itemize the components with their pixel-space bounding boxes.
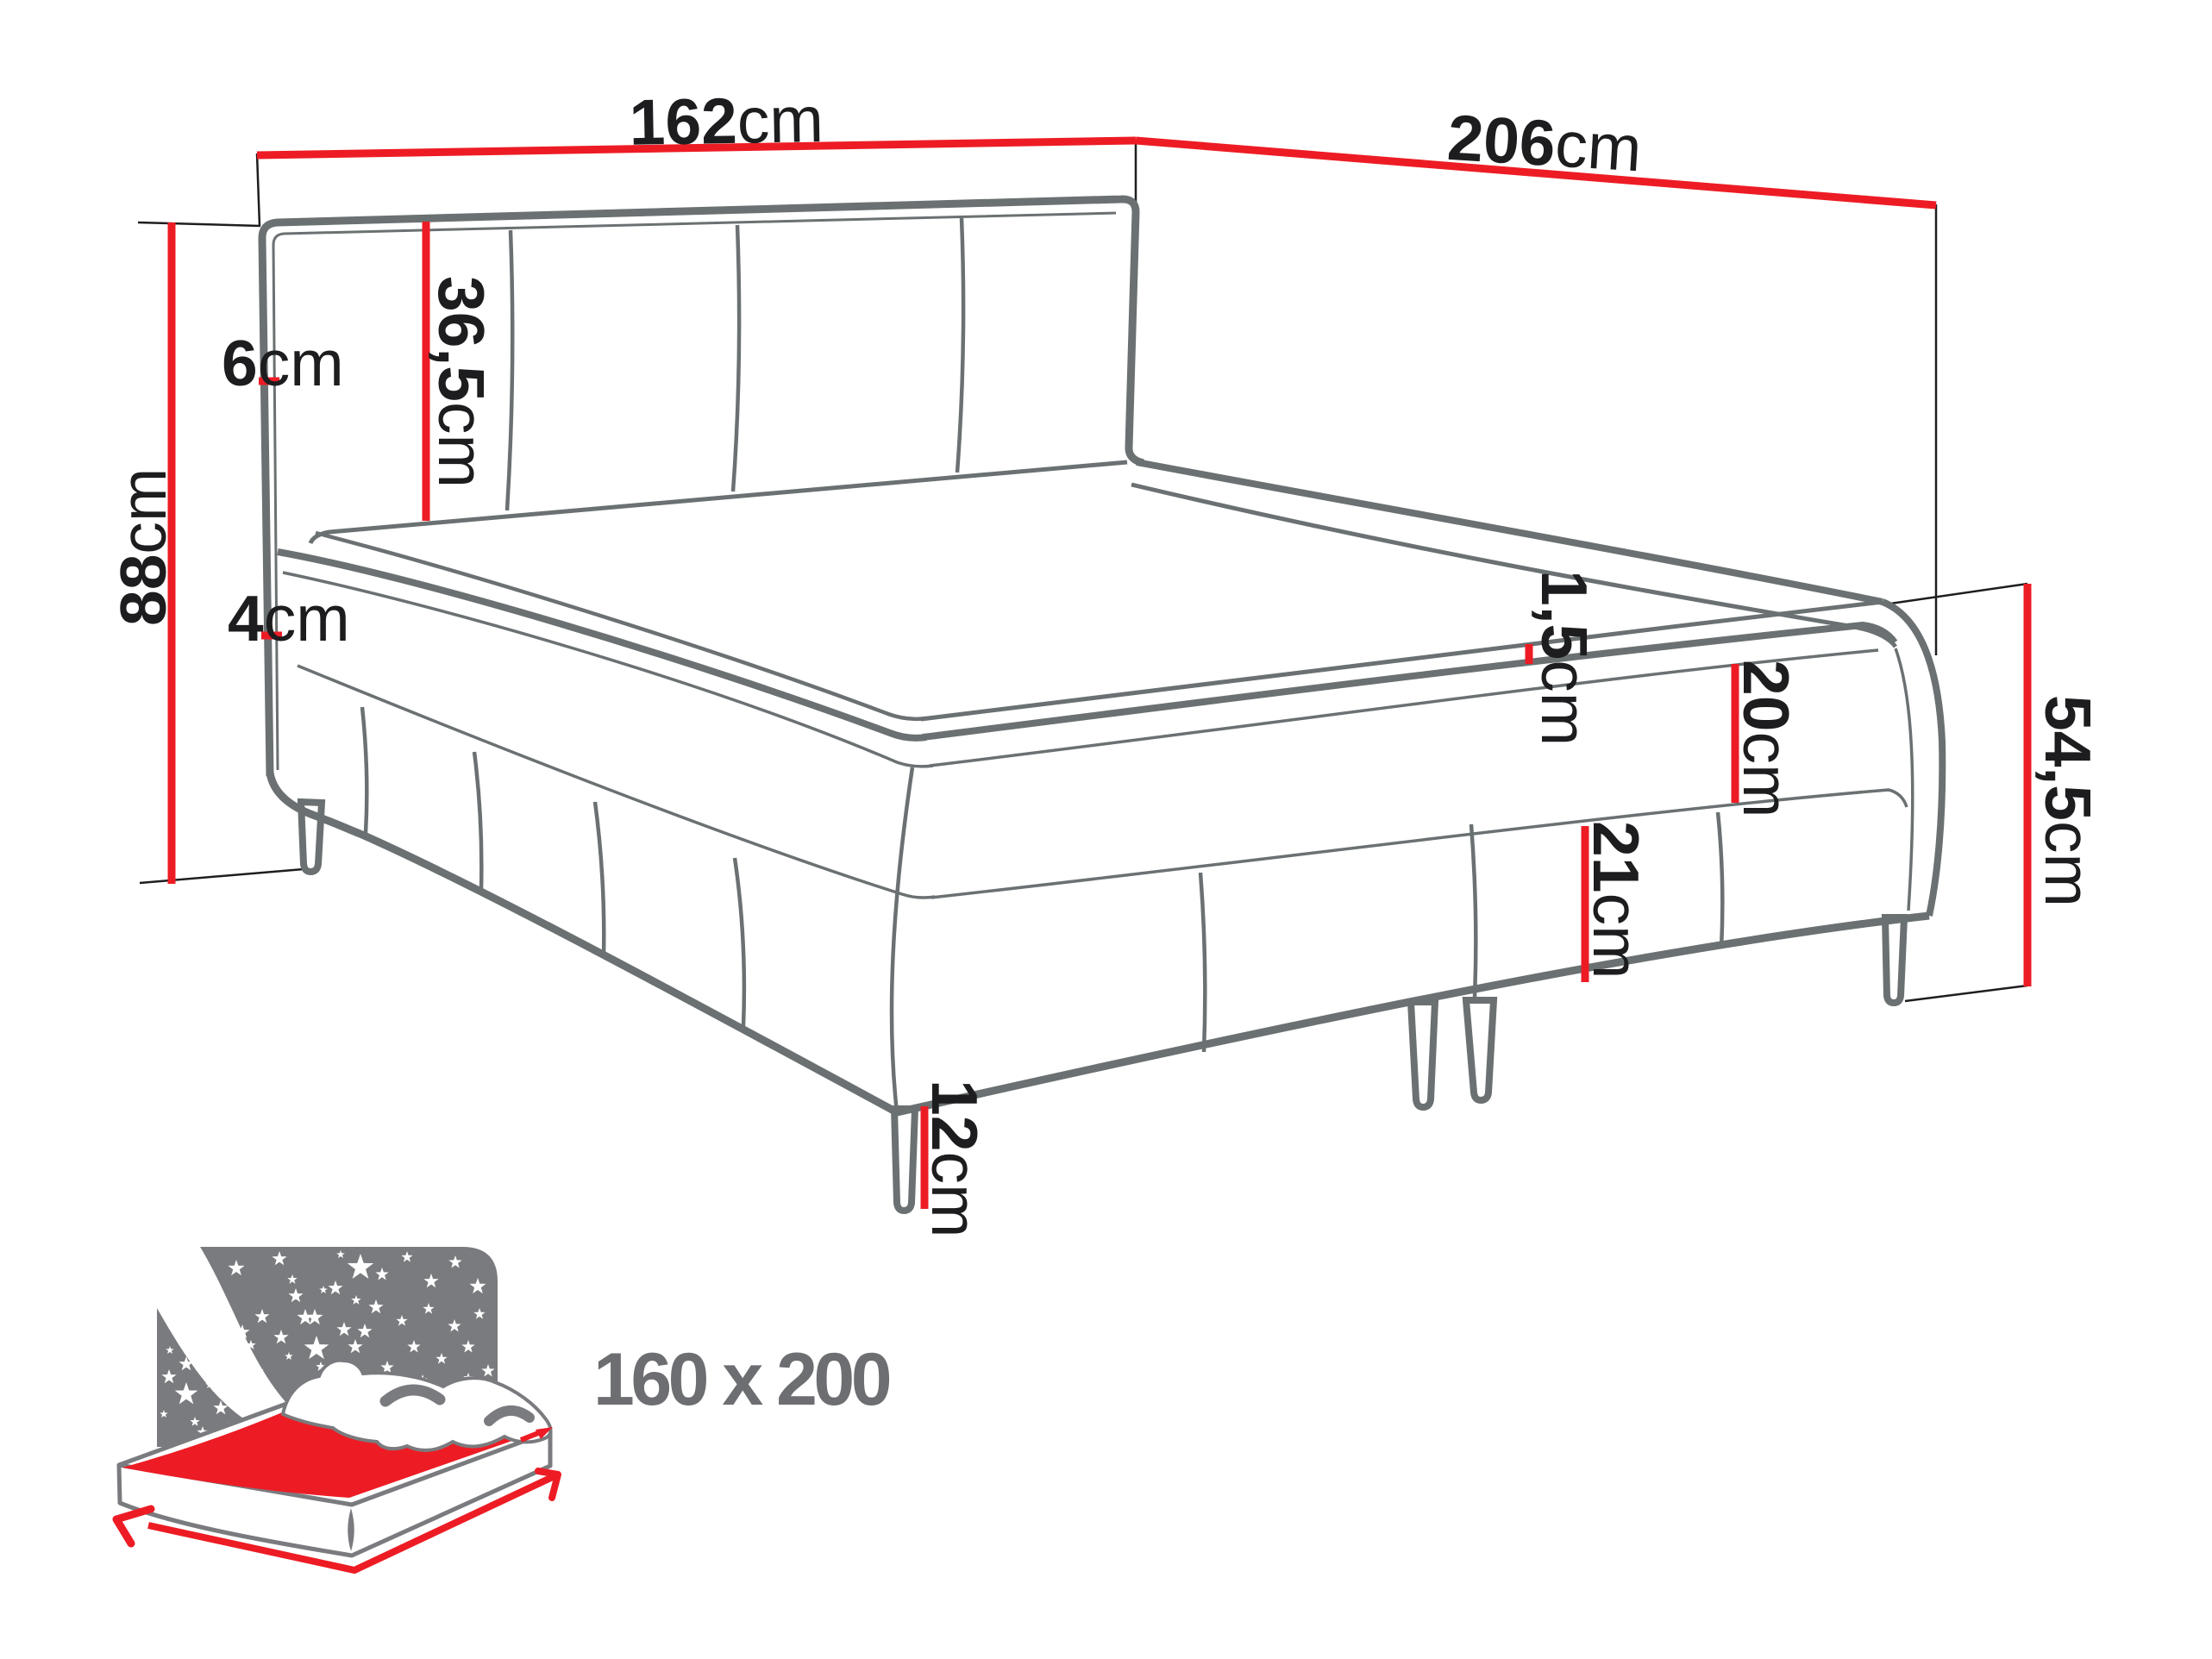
svg-text:1,5cm: 1,5cm — [1528, 570, 1601, 746]
svg-text:36,5cm: 36,5cm — [425, 276, 498, 488]
svg-text:162cm: 162cm — [629, 83, 824, 159]
svg-text:21cm: 21cm — [1580, 821, 1652, 979]
svg-text:54,5cm: 54,5cm — [2032, 695, 2104, 907]
svg-text:12cm: 12cm — [918, 1080, 991, 1237]
svg-text:206cm: 206cm — [1445, 101, 1644, 185]
svg-text:4cm: 4cm — [228, 582, 350, 654]
svg-text:160 x 200: 160 x 200 — [593, 1338, 890, 1421]
svg-text:6cm: 6cm — [222, 327, 344, 399]
svg-text:88cm: 88cm — [107, 468, 179, 626]
svg-text:20cm: 20cm — [1730, 660, 1802, 817]
